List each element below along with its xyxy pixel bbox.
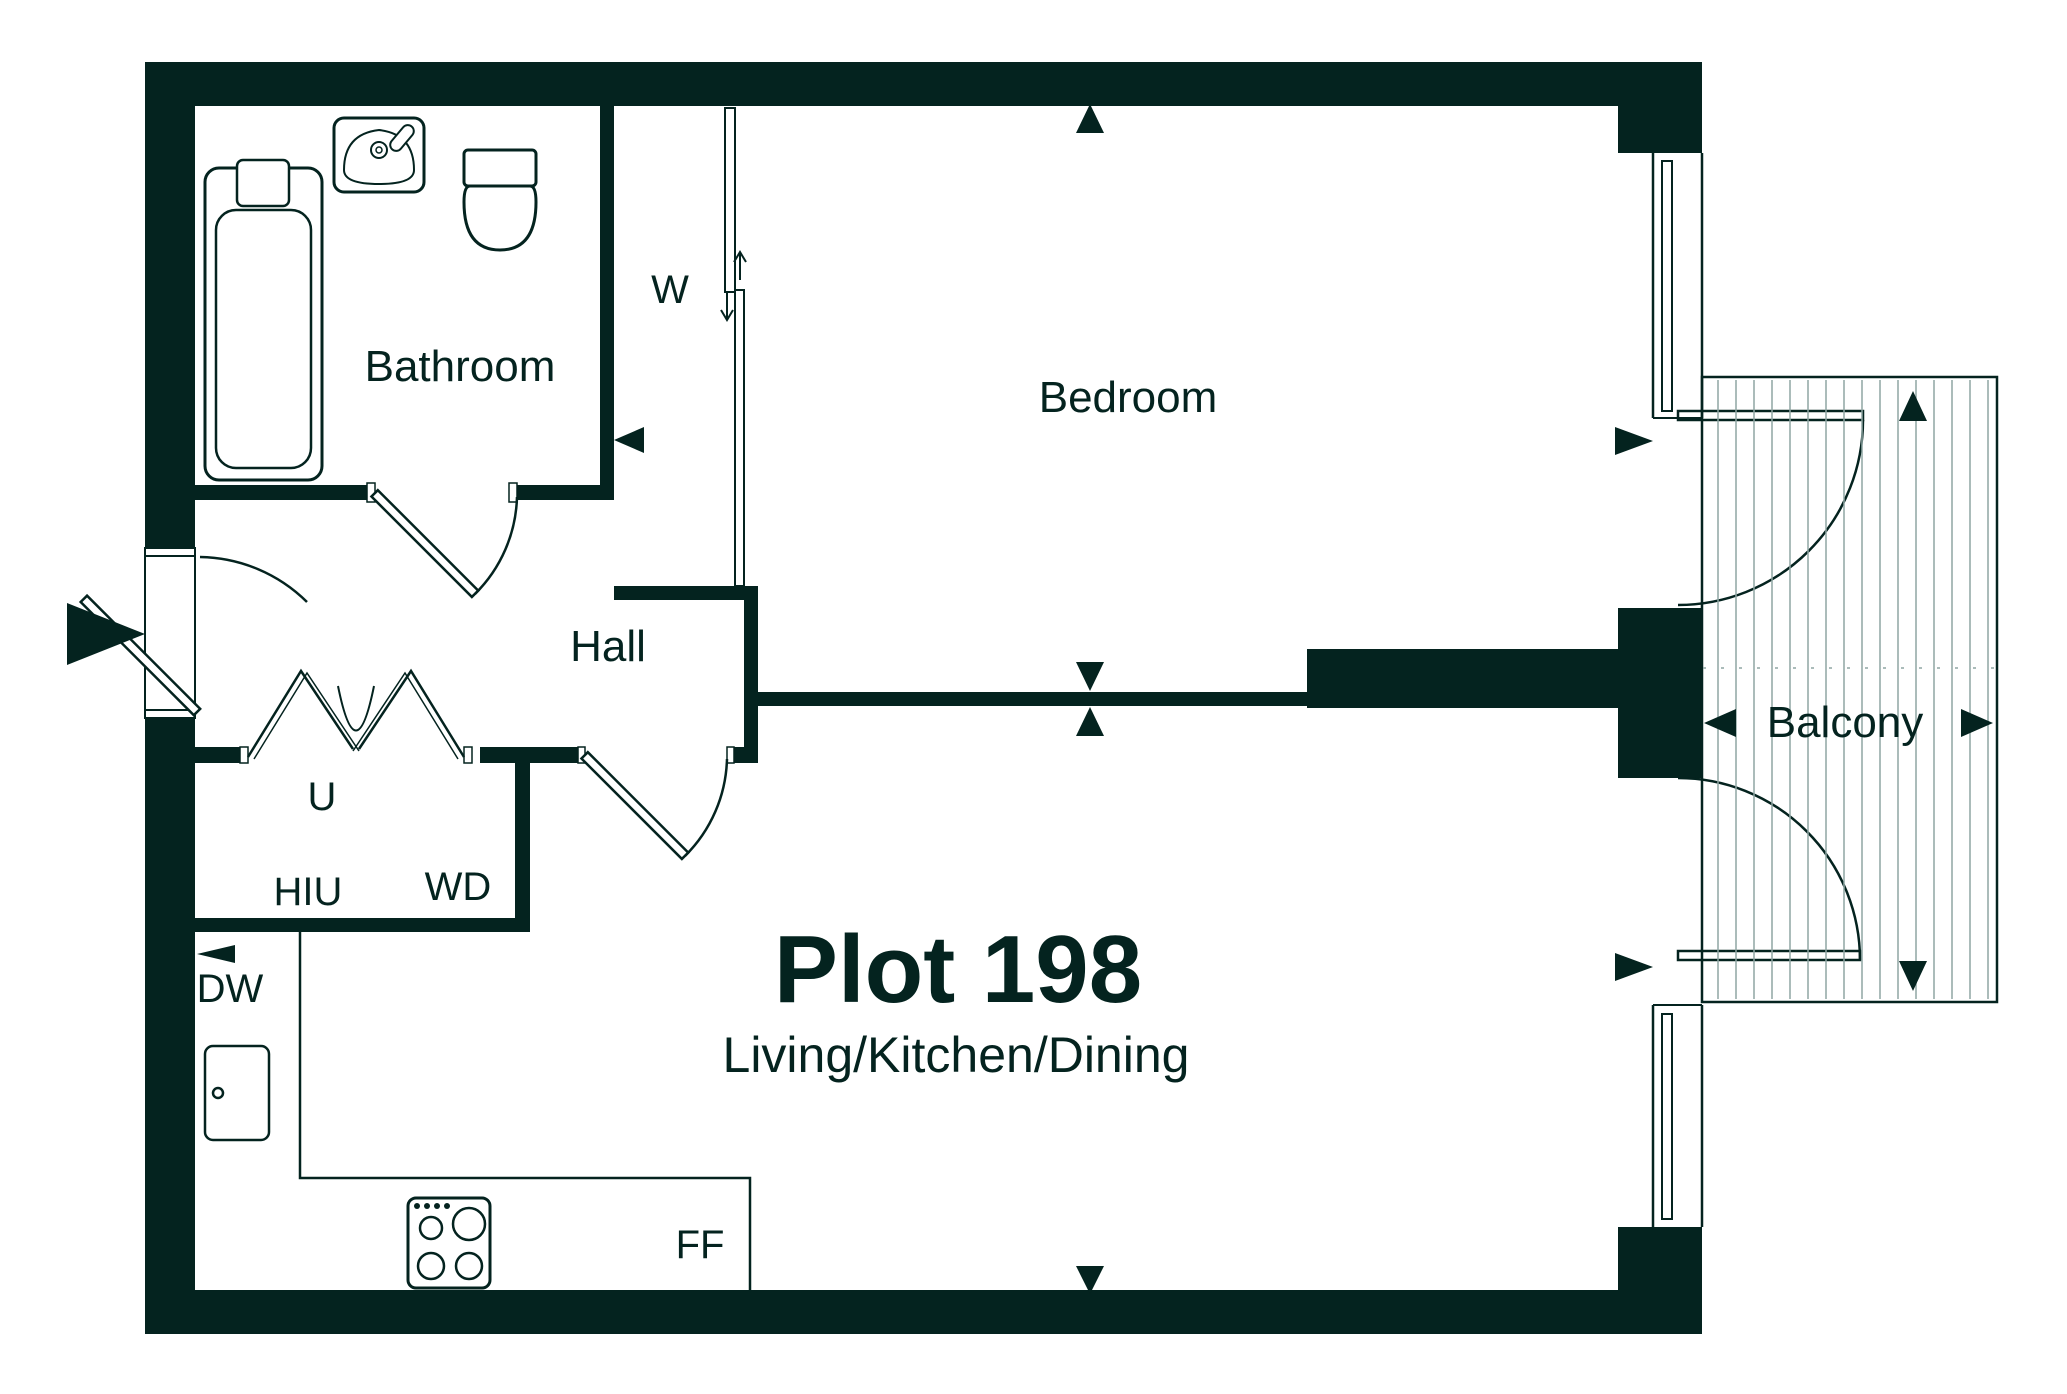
bathroom-label: Bathroom [365, 342, 556, 391]
wash-basin [334, 118, 424, 192]
hall-label: Hall [570, 622, 646, 671]
wall-hall-south-mid [480, 747, 578, 763]
bedroom-balcony-door-leaf [1678, 411, 1863, 420]
wall-bathroom-south-right [517, 485, 614, 500]
wall-left-upper [145, 62, 195, 548]
dishwasher-appliance [205, 1046, 269, 1140]
sliding-panel-2 [735, 290, 744, 586]
bathtub-inner [216, 210, 311, 468]
wall-utility-east [515, 763, 530, 932]
hob-burner-1 [420, 1217, 442, 1239]
wall-right-top-block [1618, 62, 1702, 153]
wall-left-lower [145, 718, 195, 1334]
wall-top [145, 62, 1702, 106]
hob [408, 1198, 490, 1288]
bedroom-window-glazing [1662, 161, 1672, 411]
wall-wardrobe-south [614, 586, 758, 600]
bathtub [205, 160, 322, 480]
toilet-bowl [464, 186, 536, 250]
washer-dryer-label: WD [425, 865, 492, 909]
floorplan-page: Bathroom Bedroom Hall Balcony W U HIU WD… [0, 0, 2067, 1394]
wall-bedroom-living-thin [758, 692, 1307, 706]
wall-bathroom-south-left [195, 485, 367, 500]
toilet [464, 150, 536, 250]
wall-hall-south-stub [195, 747, 240, 763]
floorplan-drawing: Bathroom Bedroom Hall Balcony W U HIU WD… [0, 0, 2067, 1394]
toilet-cistern [464, 150, 536, 186]
wall-bottom [145, 1290, 1702, 1334]
hob-burner-4 [456, 1253, 482, 1279]
wall-bedroom-living-thick [1307, 649, 1653, 708]
dishwasher-label: DW [197, 967, 264, 1011]
bedroom-label: Bedroom [1039, 373, 1218, 422]
utility-jamb-right [464, 747, 472, 763]
plot-subtitle: Living/Kitchen/Dining [723, 1027, 1190, 1083]
wall-bathroom-wardrobe [600, 106, 614, 500]
wall-right-bottom-block [1618, 1227, 1702, 1334]
utility-jamb-left [240, 747, 248, 763]
living-window-glazing [1662, 1014, 1672, 1219]
utility-label: U [308, 775, 337, 819]
fridge-freezer-label: FF [676, 1223, 725, 1267]
hob-burner-2 [453, 1208, 485, 1240]
wall-utility-south [195, 918, 530, 932]
hob-burner-3 [418, 1253, 444, 1279]
bathtub-faucet [237, 160, 289, 206]
wall-bedroom-west-column [744, 586, 758, 761]
balcony-label: Balcony [1767, 698, 1924, 747]
hiu-label: HIU [274, 870, 343, 914]
dishwasher-knob [213, 1088, 223, 1098]
plot-title: Plot 198 [774, 916, 1142, 1023]
living-balcony-door-leaf [1678, 951, 1860, 960]
sliding-panel-1 [725, 108, 735, 292]
wall-hall-south-right [734, 747, 758, 763]
wardrobe-label: W [651, 268, 689, 312]
basin-tap-center [376, 147, 382, 153]
